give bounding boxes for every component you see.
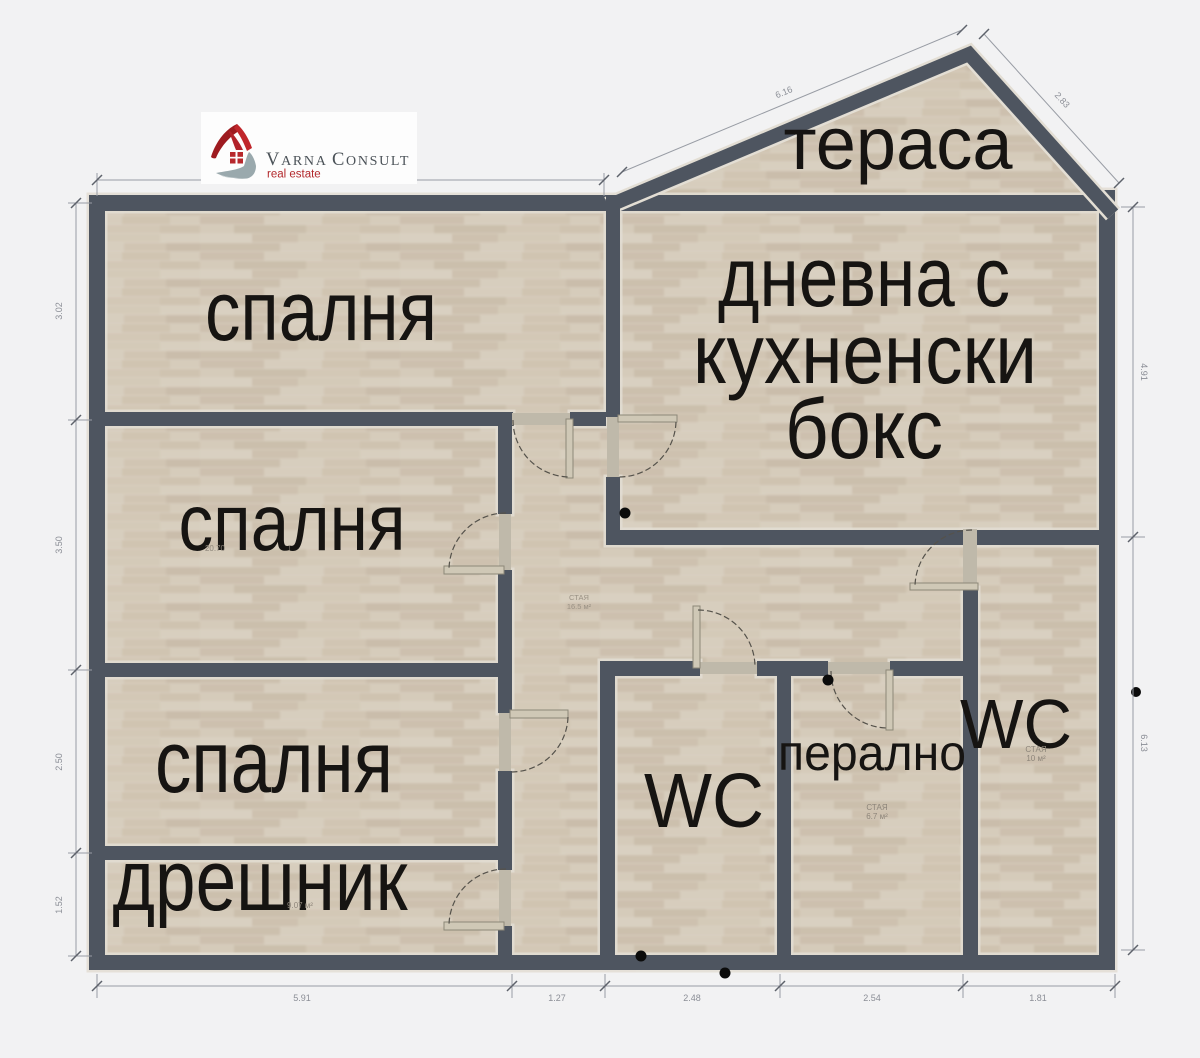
svg-text:спалня: спалня xyxy=(155,712,393,811)
svg-text:3.02: 3.02 xyxy=(54,302,64,320)
svg-text:2.50: 2.50 xyxy=(54,753,64,771)
svg-text:16.5 м²: 16.5 м² xyxy=(567,602,592,611)
svg-text:1.27: 1.27 xyxy=(548,993,566,1003)
svg-text:10 м²: 10 м² xyxy=(1026,754,1046,763)
svg-text:WC: WC xyxy=(960,685,1072,763)
svg-text:спалня: спалня xyxy=(179,478,406,567)
svg-text:тераса: тераса xyxy=(784,102,1014,185)
svg-text:real estate: real estate xyxy=(267,169,321,181)
svg-text:перално: перално xyxy=(778,725,966,781)
svg-text:СТАЯ: СТАЯ xyxy=(1025,745,1046,754)
svg-text:5.91: 5.91 xyxy=(293,993,311,1003)
svg-text:1.81: 1.81 xyxy=(1029,993,1047,1003)
svg-text:6.7 м²: 6.7 м² xyxy=(866,812,888,821)
svg-text:2.54: 2.54 xyxy=(863,993,881,1003)
svg-text:СТАЯ: СТАЯ xyxy=(569,593,589,602)
svg-text:спалня: спалня xyxy=(205,264,437,358)
svg-text:2.48: 2.48 xyxy=(683,993,701,1003)
svg-text:WC: WC xyxy=(644,758,764,844)
svg-text:4.91: 4.91 xyxy=(1139,363,1149,381)
svg-text:СТАЯ: СТАЯ xyxy=(866,803,887,812)
svg-text:3.50: 3.50 xyxy=(54,536,64,554)
svg-text:дрешник: дрешник xyxy=(113,833,409,929)
svg-text:бокс: бокс xyxy=(785,382,943,476)
svg-text:9.07 м²: 9.07 м² xyxy=(287,901,313,910)
svg-text:1.52: 1.52 xyxy=(54,896,64,914)
svg-text:20.70: 20.70 xyxy=(205,544,226,553)
svg-text:6.13: 6.13 xyxy=(1139,734,1149,752)
